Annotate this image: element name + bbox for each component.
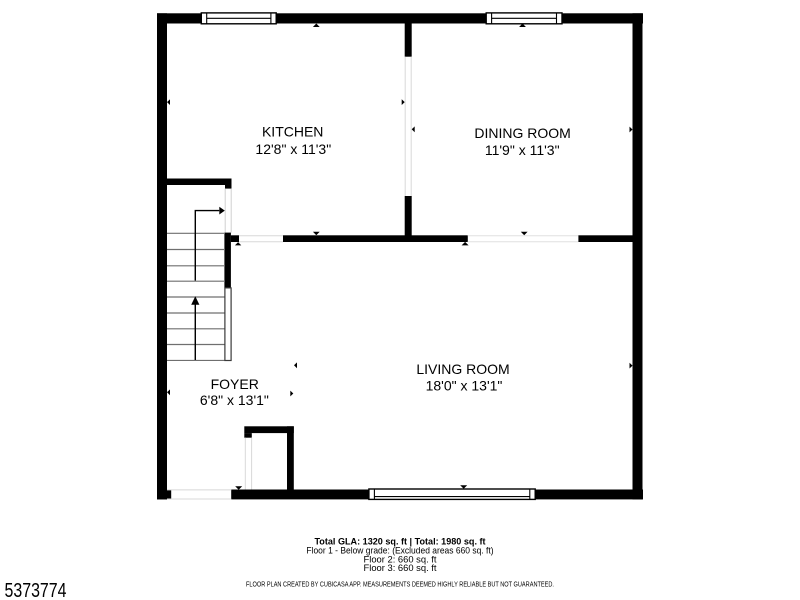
svg-text:5373774: 5373774 — [5, 580, 67, 600]
svg-text:FOYER: FOYER — [211, 376, 259, 392]
svg-text:Floor 3: 660 sq. ft: Floor 3: 660 sq. ft — [364, 563, 437, 574]
svg-text:LIVING ROOM: LIVING ROOM — [416, 361, 509, 377]
svg-text:11'9" x 11'3": 11'9" x 11'3" — [485, 142, 560, 158]
svg-text:FLOOR PLAN CREATED BY CUBICASA: FLOOR PLAN CREATED BY CUBICASA APP. MEAS… — [246, 581, 554, 588]
svg-text:KITCHEN: KITCHEN — [262, 124, 323, 140]
svg-text:DINING ROOM: DINING ROOM — [474, 125, 570, 141]
svg-text:6'8" x 13'1": 6'8" x 13'1" — [200, 392, 269, 408]
svg-text:12'8" x 11'3": 12'8" x 11'3" — [255, 141, 331, 157]
svg-text:18'0" x 13'1": 18'0" x 13'1" — [426, 377, 503, 393]
